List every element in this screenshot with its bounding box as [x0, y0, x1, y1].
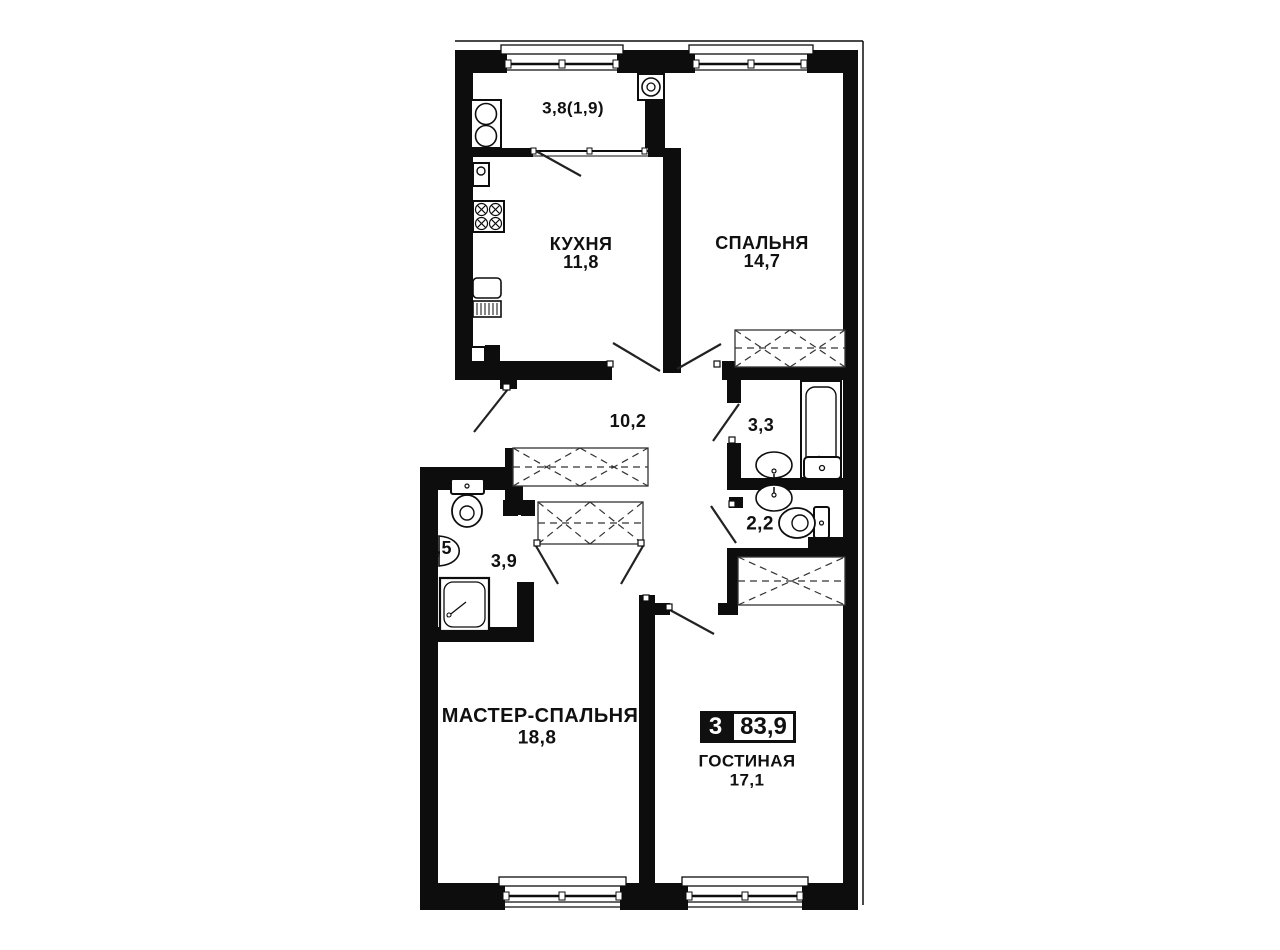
floor-plan-drawing	[0, 0, 1280, 950]
hallway-area-label: 10,2	[610, 412, 647, 430]
bedroom-area-label: 14,7	[744, 252, 781, 270]
vent-fan-icon	[638, 74, 664, 100]
stove-icon	[473, 201, 504, 232]
master-bedroom-name-label: МАСТЕР-СПАЛЬНЯ	[442, 706, 638, 726]
hallway-wardrobe	[513, 448, 648, 486]
boiler-icon	[471, 100, 501, 148]
floor-plan: 3,8(1,9) КУХНЯ 11,8 СПАЛЬНЯ 14,7 10,2 3,…	[0, 0, 1280, 950]
total-area-badge: 83,9	[731, 711, 796, 743]
washbasin-icon	[804, 457, 841, 479]
bedroom-wardrobe	[735, 330, 845, 367]
wc-area-label: 2,2	[746, 515, 774, 534]
window-master	[499, 877, 626, 910]
kitchen-duct	[471, 347, 485, 362]
niche-area-label: ,5	[436, 539, 452, 557]
window-balcony	[531, 148, 648, 157]
kitchen-door-swing	[613, 343, 660, 371]
toilet-shower-room-icon	[451, 479, 484, 527]
master-bedroom-area-label: 18,8	[518, 729, 557, 748]
window-top-right	[689, 45, 813, 73]
water-heater-icon	[473, 163, 489, 186]
entry-door-swing	[474, 389, 508, 432]
room-count-badge: 3	[700, 711, 731, 743]
bedroom-name-label: СПАЛЬНЯ	[715, 234, 808, 252]
toilet-wc-icon	[779, 507, 829, 538]
living-room-name-label: ГОСТИНАЯ	[698, 753, 795, 770]
kitchen-sink-icon	[473, 278, 501, 317]
wc-door-swing	[711, 506, 736, 543]
shower-room-area-label: 3,9	[491, 552, 517, 570]
pedestal-sink-bathroom-icon	[756, 452, 792, 481]
living-door-swing	[670, 610, 714, 634]
kitchen-area-label: 11,8	[563, 253, 599, 271]
balcony-area-label: 3,8(1,9)	[542, 100, 604, 117]
living-closet	[738, 557, 845, 605]
window-living	[682, 877, 808, 910]
master-door-right-swing	[621, 546, 643, 584]
master-door-left-swing	[536, 546, 558, 584]
bathroom-area-label: 3,3	[748, 416, 774, 434]
shower-cabin-icon	[440, 578, 489, 631]
bathroom-door-swing	[713, 404, 739, 441]
pedestal-sink-wc-icon	[756, 485, 792, 511]
kitchen-name-label: КУХНЯ	[550, 235, 613, 253]
living-room-area-label: 17,1	[730, 772, 765, 789]
window-top-left	[501, 45, 623, 73]
apartment-badge: 3 83,9	[700, 711, 796, 743]
master-closet	[538, 502, 643, 544]
